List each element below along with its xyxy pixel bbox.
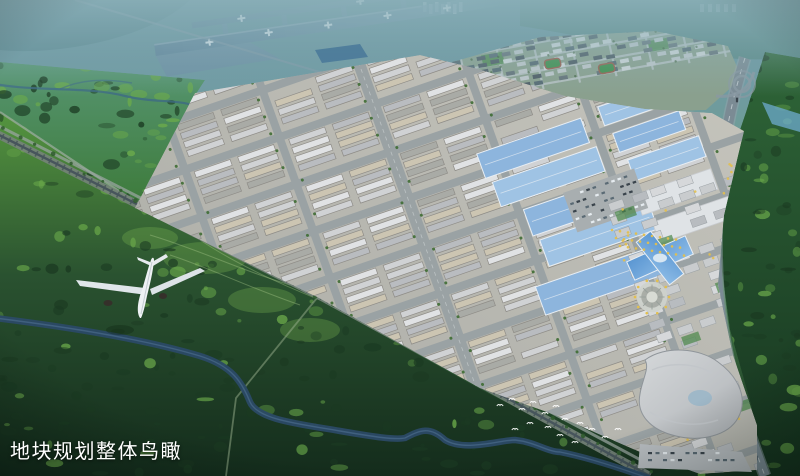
caption: 地块规划整体鸟瞰 (10, 435, 182, 464)
scene-canvas (0, 0, 800, 476)
vignette (0, 0, 800, 476)
aerial-masterplan-rendering: 地块规划整体鸟瞰 (0, 0, 800, 476)
